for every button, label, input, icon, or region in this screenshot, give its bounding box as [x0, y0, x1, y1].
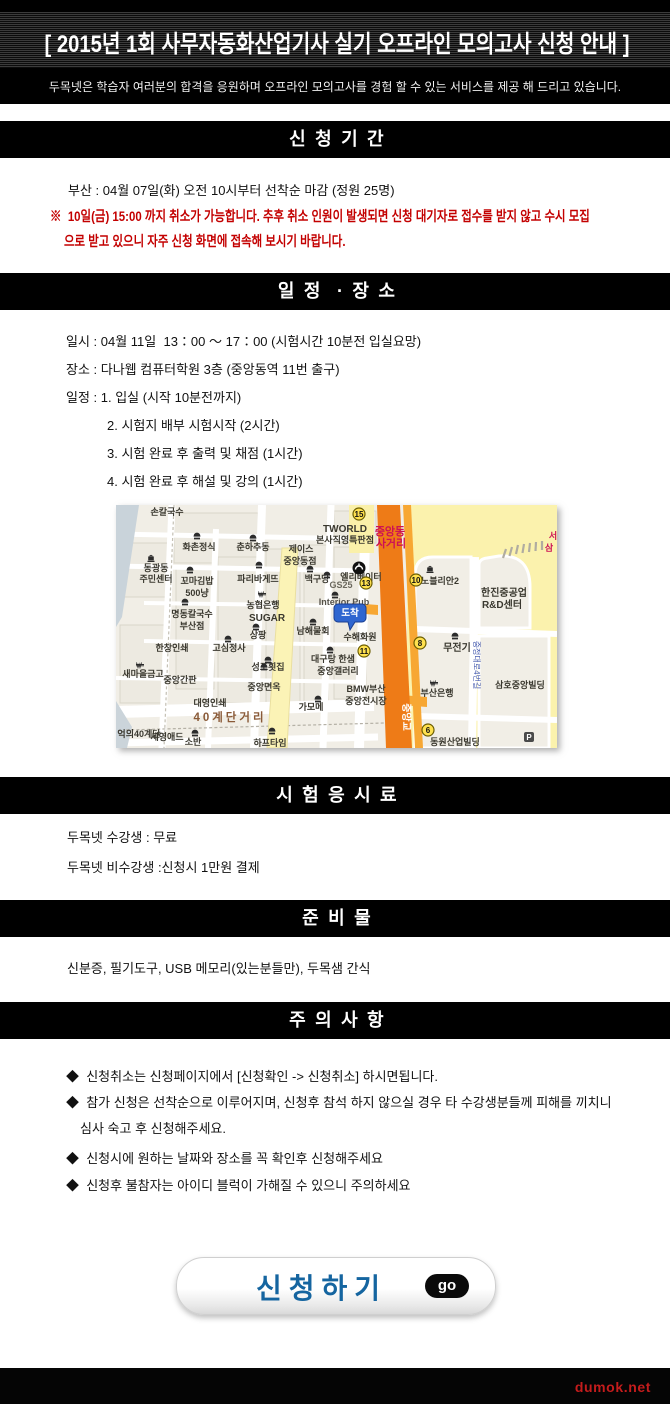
svg-text:부산점: 부산점	[180, 620, 205, 631]
svg-text:6: 6	[426, 726, 431, 735]
svg-text:새마을금고: 새마을금고	[122, 668, 163, 679]
svg-text:중앙간판: 중앙간판	[163, 674, 197, 685]
svg-text:춘하추동: 춘하추동	[236, 541, 269, 552]
svg-text:무전기: 무전기	[443, 641, 471, 654]
svg-text:대영인쇄: 대영인쇄	[193, 697, 226, 708]
svg-text:농협은행: 농협은행	[246, 599, 279, 610]
svg-text:11: 11	[360, 647, 369, 656]
svg-text:손칼국수: 손칼국수	[150, 506, 183, 517]
svg-text:중앙동점: 중앙동점	[283, 555, 316, 566]
svg-text:주민센터: 주민센터	[139, 573, 172, 584]
svg-text:상팡: 상팡	[250, 629, 267, 640]
svg-text:파리바게뜨: 파리바게뜨	[237, 573, 278, 584]
svg-text:P: P	[526, 733, 532, 742]
svg-text:중정대로4번길: 중정대로4번길	[472, 641, 482, 690]
svg-text:GS25: GS25	[329, 580, 352, 590]
svg-text:한창인쇄: 한창인쇄	[155, 642, 188, 653]
svg-text:부산은행: 부산은행	[420, 687, 453, 698]
svg-text:세영애드: 세영애드	[150, 731, 184, 742]
svg-text:삼호중앙빌딩: 삼호중앙빌딩	[495, 679, 545, 690]
svg-text:R&D센터: R&D센터	[482, 598, 522, 611]
svg-text:하프타임: 하프타임	[253, 737, 286, 748]
svg-text:화촌정식: 화촌정식	[182, 541, 215, 552]
svg-text:8: 8	[418, 639, 423, 648]
svg-text:BMW부산: BMW부산	[346, 683, 386, 694]
svg-text:500냥: 500냥	[185, 587, 209, 598]
svg-text:대구탕 한샘: 대구탕 한샘	[311, 653, 355, 664]
svg-text:15: 15	[355, 510, 364, 519]
svg-text:본사직영특판점: 본사직영특판점	[316, 534, 374, 545]
svg-text:사거리: 사거리	[376, 536, 406, 550]
svg-text:꼬마김밥: 꼬마김밥	[180, 575, 214, 586]
svg-text:TWORLD: TWORLD	[323, 524, 367, 535]
svg-text:고심정사: 고심정사	[212, 642, 246, 653]
svg-text:제이스: 제이스	[289, 543, 315, 554]
svg-text:10: 10	[412, 576, 421, 585]
svg-text:삼: 삼	[545, 542, 554, 553]
svg-text:남해물회: 남해물회	[296, 625, 329, 636]
svg-text:중앙갤러리: 중앙갤러리	[317, 665, 358, 676]
svg-text:노블리안2: 노블리안2	[421, 575, 459, 586]
svg-text:소반: 소반	[185, 736, 202, 747]
svg-text:중앙전시장: 중앙전시장	[345, 695, 387, 706]
svg-text:서: 서	[549, 530, 557, 541]
svg-text:가모메: 가모메	[299, 701, 324, 712]
svg-text:40계단거리: 40계단거리	[193, 710, 266, 724]
svg-text:도착: 도착	[341, 607, 359, 619]
svg-text:한진중공업: 한진중공업	[481, 586, 527, 599]
svg-text:중앙교: 중앙교	[400, 703, 412, 731]
svg-text:SUGAR: SUGAR	[249, 613, 286, 624]
svg-text:중앙동: 중앙동	[375, 525, 405, 538]
svg-text:동광동: 동광동	[144, 562, 169, 573]
svg-text:중앙면옥: 중앙면옥	[247, 681, 280, 692]
svg-text:13: 13	[362, 579, 371, 588]
svg-text:동원산업빌딩: 동원산업빌딩	[430, 736, 480, 747]
svg-text:명동칼국수: 명동칼국수	[171, 608, 212, 619]
svg-text:수해화원: 수해화원	[343, 631, 376, 642]
